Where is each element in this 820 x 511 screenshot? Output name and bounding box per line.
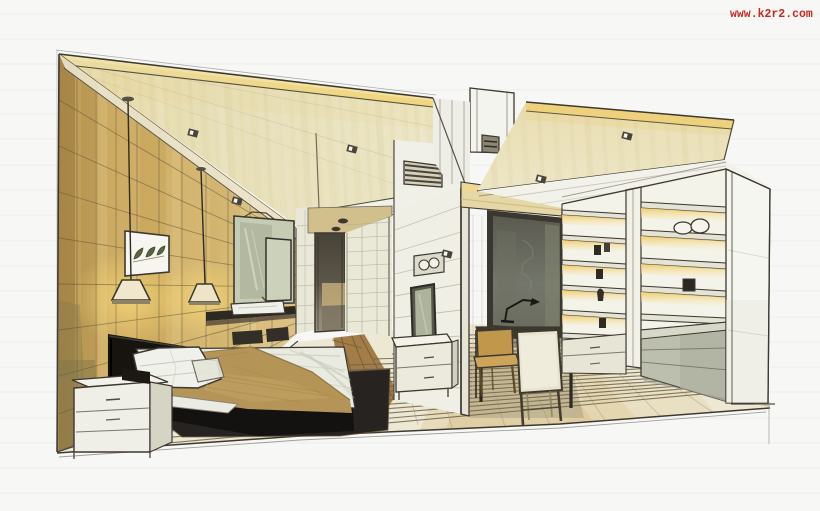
svg-text:www.k2r2.com: www.k2r2.com (730, 8, 813, 21)
